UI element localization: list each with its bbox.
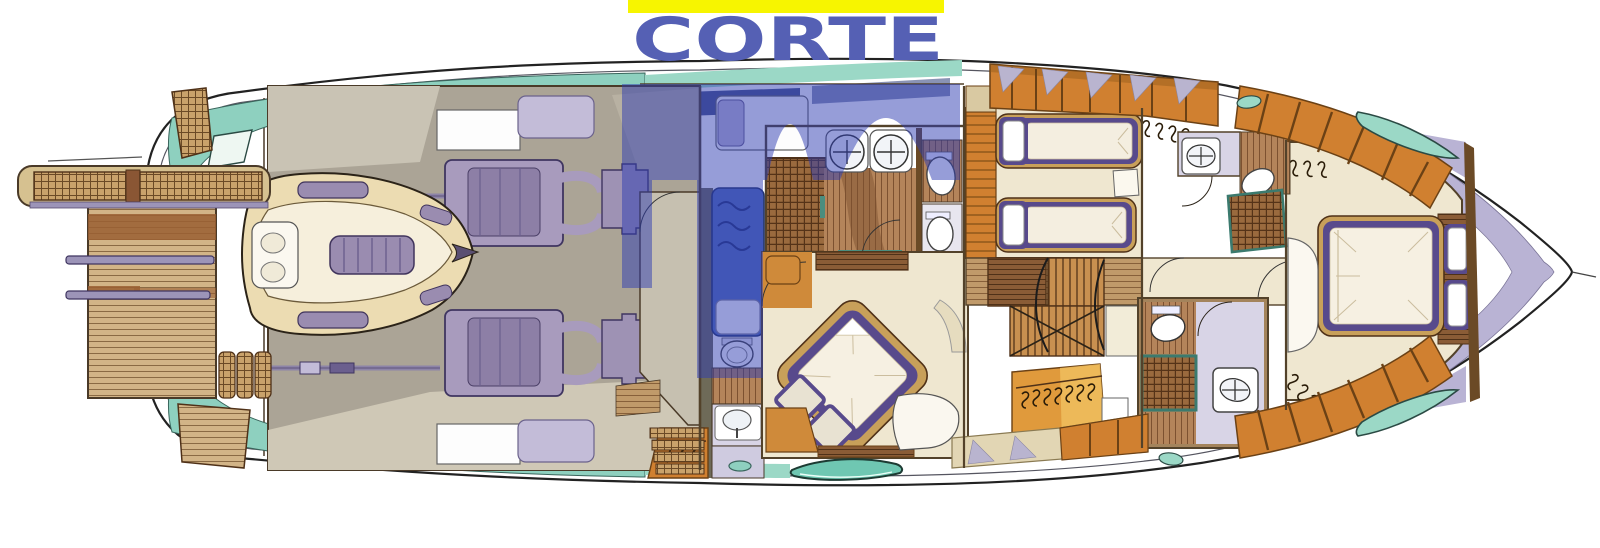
vip-bed [1318,216,1444,336]
garage-berth-bottom [437,424,520,464]
mooring-rod-2 [66,291,210,299]
crew-wood-patch [616,380,660,416]
crew-teal-oval [729,461,751,471]
floorplan-svg: CORTE [0,0,1600,548]
twin-nightstand [1113,169,1139,197]
stair-cabinet [988,258,1046,306]
yacht-floorplan-image: CORTE [0,0,1600,548]
twin-wardrobe-column [966,112,996,258]
wc2-toilet [927,217,953,251]
master-side-table-top [766,256,800,284]
twin-bed-2 [996,198,1136,252]
dayhead-floor-wood2 [1142,412,1196,444]
vip-pillow-2 [1444,280,1470,330]
master-cabin [762,252,968,458]
twin-bed-1 [996,114,1142,168]
dayhead-tank [1152,306,1180,314]
garage-berth-top [437,110,520,150]
vip-console [1288,238,1318,352]
crew-sink-basin [723,410,751,430]
deck-teak-pad [178,404,250,468]
garage-floor-light-top [268,86,440,172]
teal-trim-left [820,196,825,218]
garage-cushion-bottom [518,420,594,462]
vip-shower [1228,190,1286,252]
bow-tip-tick [1572,272,1596,277]
platform-steps [219,352,271,398]
watermark-text: CORTE [632,5,944,75]
garage-cushion-top [518,96,594,138]
master-top-cabinet [816,252,908,270]
mooring-rod-1 [66,256,214,264]
stair-landing [1106,306,1140,356]
platform-dark-band-1 [88,214,216,240]
dayhead-shower [1142,356,1196,410]
